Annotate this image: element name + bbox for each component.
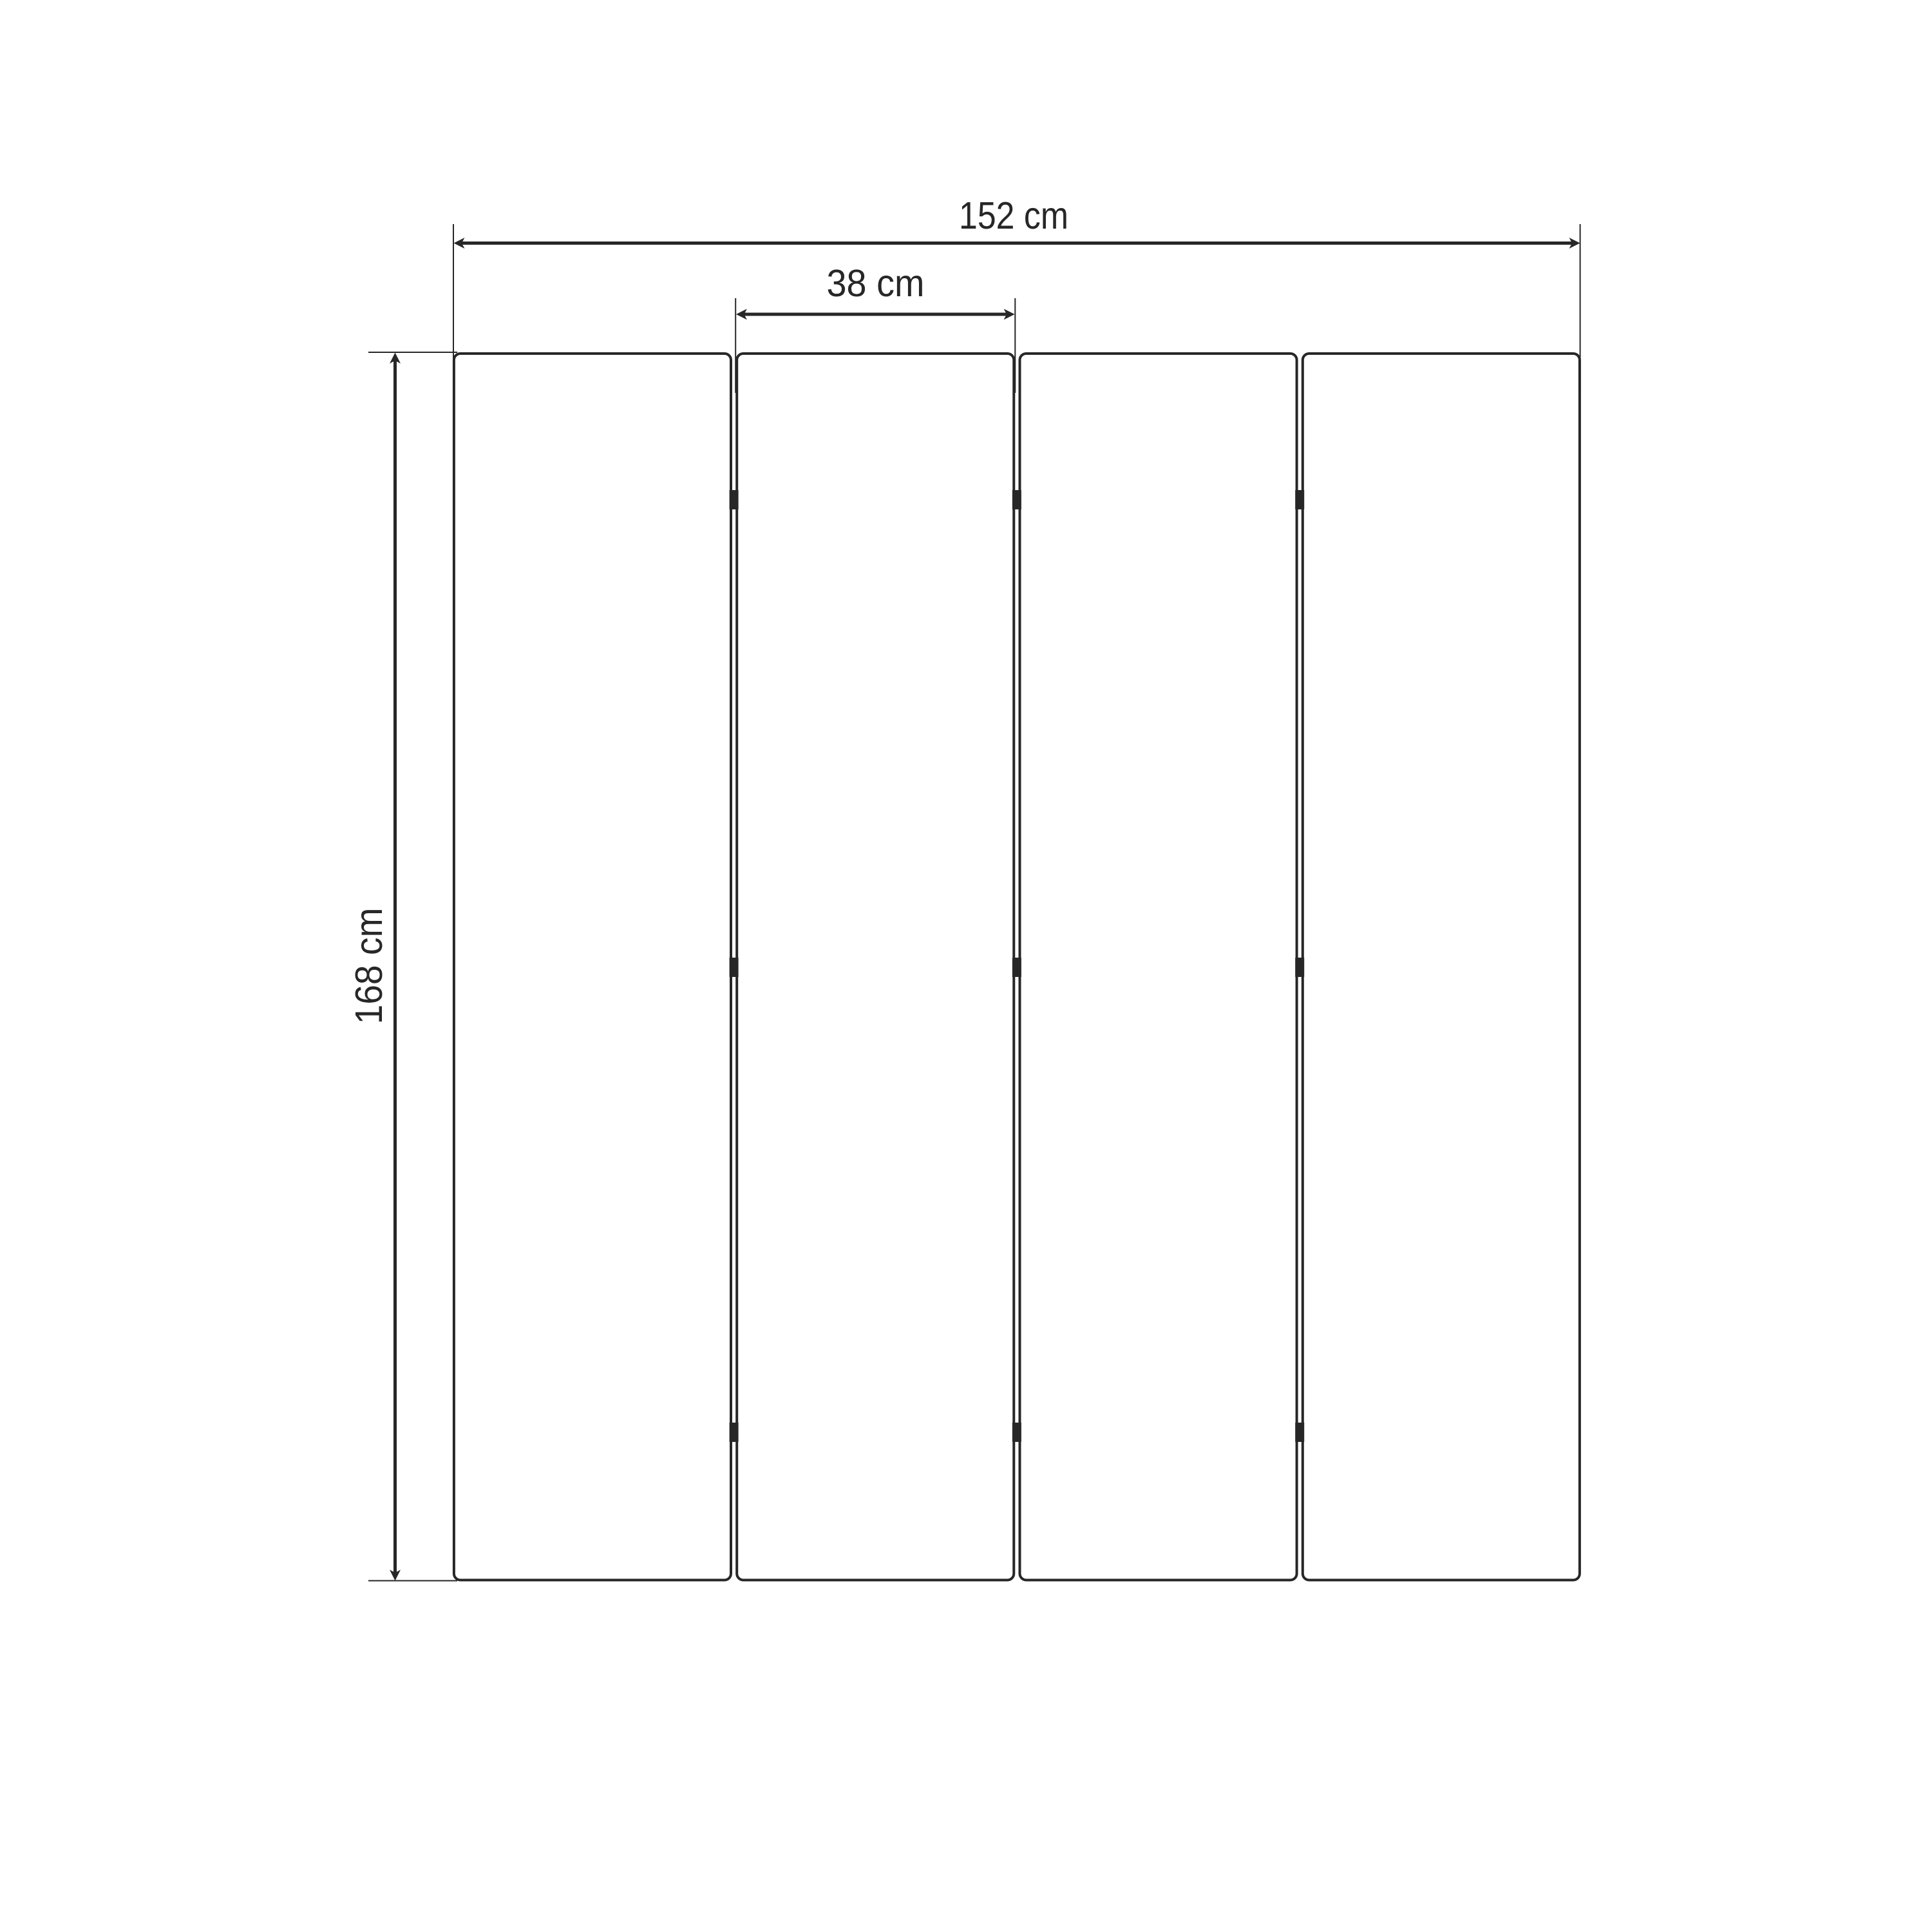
svg-text:168 cm: 168 cm [348,908,390,1025]
svg-text:38 cm: 38 cm [827,262,925,305]
svg-text:152 cm: 152 cm [959,194,1068,237]
